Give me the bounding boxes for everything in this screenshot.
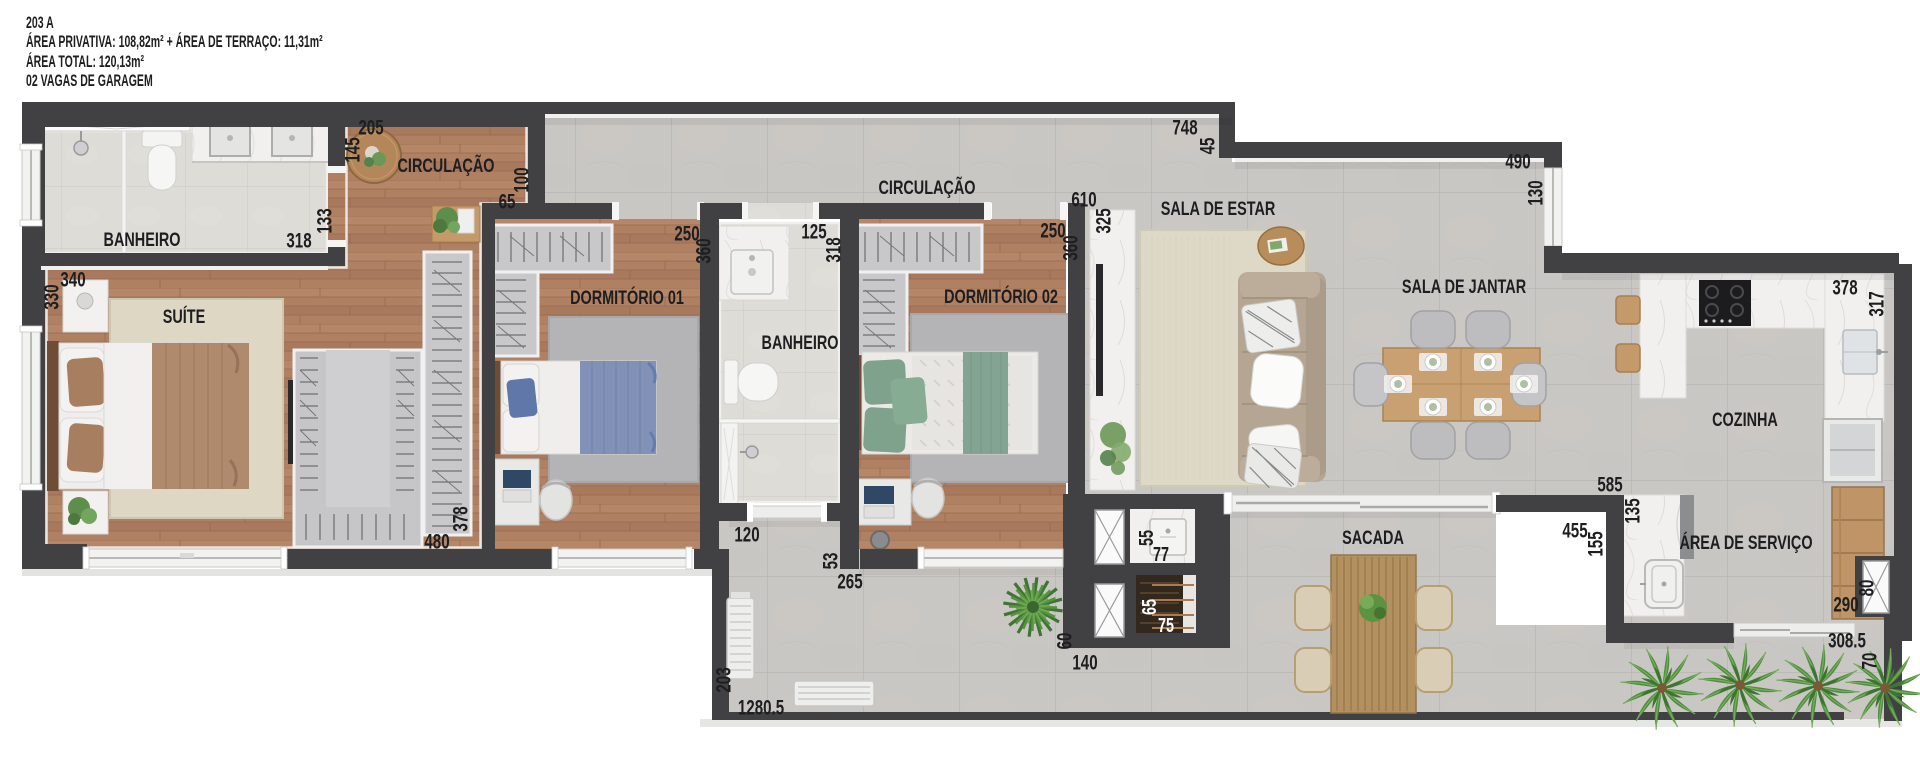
svg-text:265: 265 (837, 569, 862, 593)
svg-text:75: 75 (1158, 614, 1174, 637)
svg-text:65: 65 (499, 189, 516, 213)
svg-text:145: 145 (340, 137, 364, 162)
svg-text:BANHEIRO: BANHEIRO (104, 229, 181, 250)
svg-text:77: 77 (1153, 543, 1169, 566)
svg-text:378: 378 (448, 506, 472, 531)
svg-text:120: 120 (734, 522, 759, 546)
svg-text:205: 205 (358, 115, 383, 139)
svg-text:60: 60 (1052, 633, 1076, 650)
svg-text:80: 80 (1854, 580, 1878, 597)
svg-text:ÁREA TOTAL: 120,13m²: ÁREA TOTAL: 120,13m² (26, 51, 144, 70)
svg-text:CIRCULAÇÃO: CIRCULAÇÃO (879, 176, 976, 199)
svg-text:155: 155 (1583, 531, 1607, 556)
svg-text:COZINHA: COZINHA (1712, 409, 1778, 430)
svg-text:130: 130 (1523, 180, 1547, 205)
svg-text:SALA DE ESTAR: SALA DE ESTAR (1161, 198, 1276, 219)
svg-text:02 VAGAS DE GARAGEM: 02 VAGAS DE GARAGEM (26, 70, 153, 89)
svg-text:330: 330 (39, 284, 63, 309)
svg-text:SUÍTE: SUÍTE (163, 306, 205, 327)
svg-text:SACADA: SACADA (1342, 527, 1404, 548)
svg-text:490: 490 (1505, 149, 1530, 173)
svg-text:1280.5: 1280.5 (738, 695, 784, 719)
svg-text:135: 135 (1620, 498, 1644, 523)
svg-text:360: 360 (1058, 235, 1082, 260)
svg-text:140: 140 (1072, 650, 1097, 674)
svg-text:318: 318 (286, 228, 311, 252)
svg-text:203: 203 (711, 667, 735, 692)
svg-text:585: 585 (1597, 472, 1622, 496)
svg-text:610: 610 (1071, 187, 1096, 211)
svg-text:378: 378 (1832, 275, 1857, 299)
svg-text:360: 360 (691, 238, 715, 263)
svg-text:DORMITÓRIO 02: DORMITÓRIO 02 (944, 286, 1058, 307)
svg-text:133: 133 (312, 208, 336, 233)
svg-text:203 A: 203 A (26, 12, 54, 31)
svg-text:BANHEIRO: BANHEIRO (762, 332, 839, 353)
svg-text:SALA DE JANTAR: SALA DE JANTAR (1402, 276, 1526, 297)
svg-text:325: 325 (1091, 208, 1115, 233)
svg-text:340: 340 (60, 267, 85, 291)
svg-text:318: 318 (821, 237, 845, 262)
svg-text:480: 480 (424, 529, 449, 553)
svg-text:53: 53 (818, 553, 842, 570)
svg-text:65: 65 (1138, 599, 1161, 615)
svg-text:ÁREA DE SERVIÇO: ÁREA DE SERVIÇO (1679, 532, 1812, 553)
svg-text:748: 748 (1172, 115, 1197, 139)
svg-text:ÁREA PRIVATIVA: 108,82m² + ÁRE: ÁREA PRIVATIVA: 108,82m² + ÁREA DE TERRA… (26, 31, 323, 50)
svg-text:317: 317 (1864, 291, 1888, 316)
svg-text:DORMITÓRIO 01: DORMITÓRIO 01 (570, 287, 684, 308)
svg-text:308.5: 308.5 (1828, 628, 1866, 652)
svg-text:CIRCULAÇÃO: CIRCULAÇÃO (398, 154, 495, 177)
svg-text:45: 45 (1195, 138, 1219, 155)
svg-text:70: 70 (1857, 653, 1881, 670)
